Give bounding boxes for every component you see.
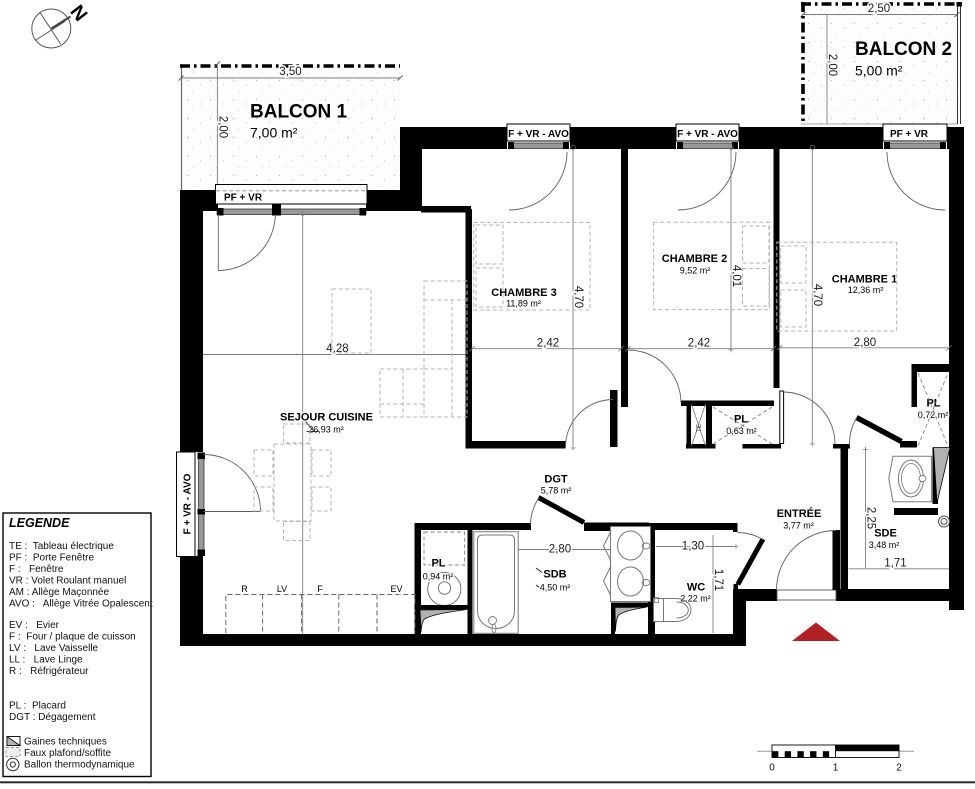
svg-text:PL : Placard: PL : Placard (9, 701, 66, 712)
svg-text:3,48 m²: 3,48 m² (869, 540, 900, 550)
svg-text:2,25: 2,25 (864, 507, 876, 529)
svg-text:TE : Tableau électrique: TE : Tableau électrique (9, 541, 114, 552)
svg-text:4,01: 4,01 (730, 265, 742, 287)
svg-text:2,22 m²: 2,22 m² (680, 594, 711, 604)
svg-text:F : Fenêtre: F : Fenêtre (9, 564, 64, 575)
svg-text:2,80: 2,80 (549, 544, 571, 556)
svg-text:SEJOUR CUISINE: SEJOUR CUISINE (280, 412, 373, 424)
svg-text:1,71: 1,71 (712, 569, 724, 591)
svg-text:PF + VR: PF + VR (890, 129, 929, 140)
svg-text:2,42: 2,42 (537, 338, 559, 350)
svg-text:LV: LV (277, 584, 287, 594)
svg-text:7,00 m²: 7,00 m² (250, 125, 298, 141)
svg-text:Gaines techniques: Gaines techniques (24, 737, 107, 748)
svg-text:Ballon thermodynamique: Ballon thermodynamique (24, 760, 135, 771)
svg-text:12,36 m²: 12,36 m² (848, 285, 884, 295)
svg-text:F + VR - AVO: F + VR - AVO (508, 129, 569, 140)
svg-text:5,00 m²: 5,00 m² (855, 63, 903, 79)
svg-text:11,89 m²: 11,89 m² (506, 299, 541, 309)
svg-text:LL : Lave Linge: LL : Lave Linge (9, 655, 83, 666)
svg-text:0,72 m²: 0,72 m² (918, 410, 949, 420)
svg-text:1: 1 (833, 763, 839, 774)
svg-text:2,50: 2,50 (868, 3, 890, 15)
svg-text:2,00: 2,00 (826, 54, 838, 76)
svg-text:DGT: DGT (544, 474, 568, 486)
svg-text:4,50 m²: 4,50 m² (540, 583, 571, 593)
svg-text:SDB: SDB (543, 569, 566, 581)
svg-text:9,52 m²: 9,52 m² (680, 266, 711, 276)
svg-text:4,70: 4,70 (811, 284, 823, 306)
svg-text:26,93 m²: 26,93 m² (308, 425, 344, 435)
svg-text:3,50: 3,50 (279, 66, 301, 78)
svg-text:2: 2 (896, 763, 902, 774)
svg-text:DGT : Dégagement: DGT : Dégagement (9, 712, 96, 723)
svg-text:PL: PL (431, 558, 445, 570)
svg-text:PF + VR: PF + VR (224, 193, 263, 204)
svg-text:VR : Volet Roulant manuel: VR : Volet Roulant manuel (9, 576, 126, 587)
svg-text:AM : Allège Maçonnée: AM : Allège Maçonnée (9, 587, 109, 598)
svg-text:CHAMBRE 1: CHAMBRE 1 (832, 274, 897, 286)
svg-text:WC: WC (687, 582, 705, 594)
svg-text:AVO : Allège Vitrée Opalesce: AVO : Allège Vitrée Opalescent (9, 599, 153, 610)
svg-text:1,71: 1,71 (884, 558, 906, 570)
svg-text:ENTRÉE: ENTRÉE (777, 507, 822, 520)
svg-text:LEGENDE: LEGENDE (9, 516, 70, 530)
svg-text:0,63 m²: 0,63 m² (726, 426, 757, 436)
svg-text:PL: PL (734, 414, 748, 426)
svg-text:EV : Evier: EV : Evier (9, 620, 60, 631)
svg-text:4,70: 4,70 (572, 286, 584, 308)
svg-text:F + VR - AVO: F + VR - AVO (183, 473, 194, 534)
svg-text:BALCON 1: BALCON 1 (250, 102, 348, 123)
svg-text:PF : Porte Fenêtre: PF : Porte Fenêtre (9, 553, 94, 564)
svg-text:R: R (241, 584, 248, 594)
svg-text:F + VR - AVO: F + VR - AVO (677, 129, 738, 140)
svg-text:LV : Lave Vaisselle: LV : Lave Vaisselle (9, 643, 99, 654)
svg-text:2,00: 2,00 (217, 116, 229, 138)
svg-text:0: 0 (769, 763, 775, 774)
svg-text:5,78 m²: 5,78 m² (541, 486, 572, 496)
svg-text:1,30: 1,30 (682, 541, 704, 553)
svg-text:R : Réfrigérateur: R : Réfrigérateur (9, 666, 89, 677)
svg-text:EV: EV (390, 584, 402, 594)
svg-text:0,94 m²: 0,94 m² (423, 572, 454, 582)
svg-text:F : Four / plaque de cuisson: F : Four / plaque de cuisson (9, 632, 136, 643)
svg-text:CHAMBRE 3: CHAMBRE 3 (491, 287, 556, 299)
svg-text:TE: TE (696, 423, 703, 432)
svg-text:SDE: SDE (874, 528, 897, 540)
svg-text:Faux plafond/soffite: Faux plafond/soffite (24, 748, 112, 759)
svg-text:2,80: 2,80 (854, 337, 876, 349)
svg-text:BALCON 2: BALCON 2 (855, 39, 952, 60)
svg-text:2,42: 2,42 (688, 338, 710, 350)
svg-text:F: F (317, 584, 323, 594)
svg-text:3,77 m²: 3,77 m² (783, 521, 814, 531)
svg-text:CHAMBRE 2: CHAMBRE 2 (662, 253, 727, 265)
